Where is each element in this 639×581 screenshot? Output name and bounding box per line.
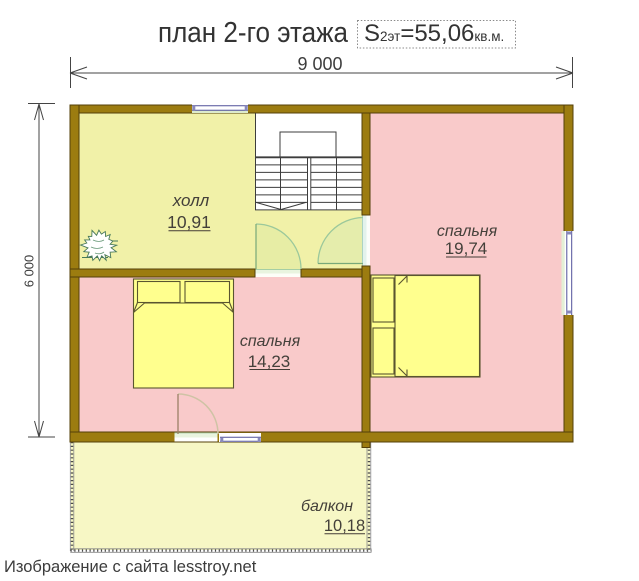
svg-text:холл: холл [172,191,210,210]
svg-text:спальня: спальня [240,333,301,350]
svg-text:10,18: 10,18 [324,517,365,535]
svg-text:Изображение с сайта lesstroy.n: Изображение с сайта lesstroy.net [4,558,257,576]
svg-text:19,74: 19,74 [445,239,488,258]
svg-text:спальня: спальня [437,223,498,240]
svg-text:9 000: 9 000 [297,54,342,74]
svg-text:6 000: 6 000 [22,255,37,288]
svg-text:S2эт=55,06кв.м.: S2эт=55,06кв.м. [364,20,504,47]
svg-text:14,23: 14,23 [248,352,291,371]
svg-text:план 2-го этажа: план 2-го этажа [158,17,349,49]
svg-text:балкон: балкон [301,498,353,515]
svg-text:10,91: 10,91 [167,212,211,232]
